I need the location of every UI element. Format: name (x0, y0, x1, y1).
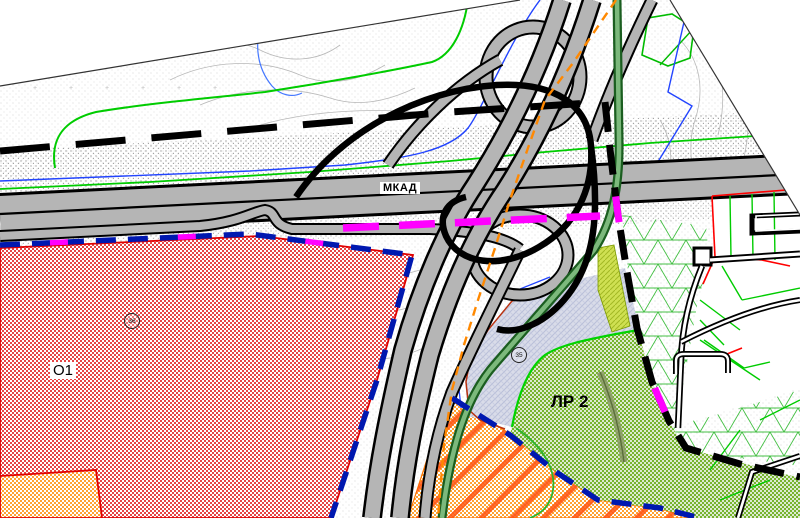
zone-O1-marker: 36 (124, 313, 140, 329)
road-bulb (694, 248, 711, 265)
map-viewport[interactable]: +++ +++ (0, 0, 800, 518)
zone-LR2-marker: 35 (511, 347, 527, 363)
zone-O1-label: О1 (50, 362, 76, 379)
zone-orange-small (0, 470, 102, 518)
svg-text:+: + (105, 85, 109, 92)
svg-text:+: + (213, 85, 217, 92)
mkad-highway-label: МКАД (380, 182, 420, 194)
zone-LR2-label: ЛР 2 (551, 392, 588, 412)
svg-text:+: + (69, 85, 73, 92)
svg-text:+: + (141, 85, 145, 92)
svg-text:+: + (177, 85, 181, 92)
svg-text:+: + (33, 85, 37, 92)
plan-drawing: +++ +++ (0, 0, 800, 518)
